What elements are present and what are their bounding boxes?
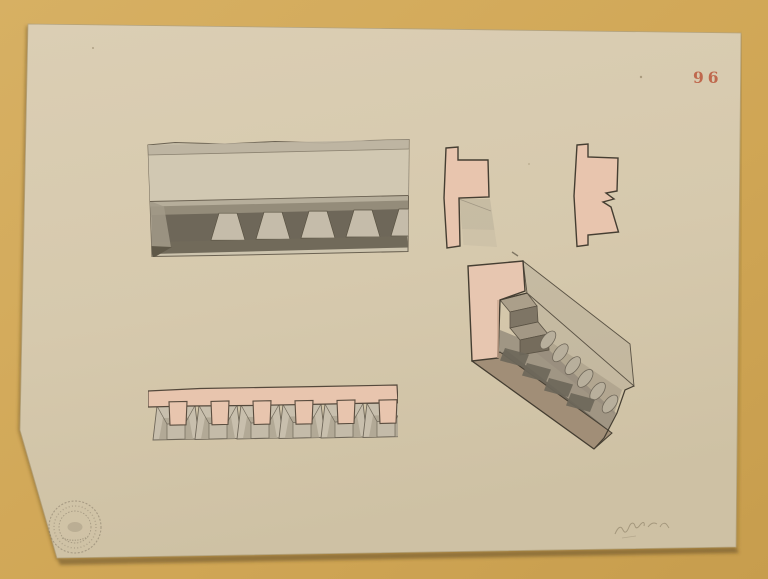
soffit-square-inner xyxy=(167,424,185,440)
soffit-pink-stem xyxy=(337,400,355,424)
soffit-pink-stem xyxy=(379,400,397,424)
soffit-pink-stem xyxy=(295,400,313,424)
elevation-frieze xyxy=(148,149,409,202)
paper-sheet xyxy=(20,24,741,558)
photographed-drawing-scene: 96 xyxy=(0,0,768,579)
soffit-pink-stem xyxy=(253,401,271,425)
soffit-pink-stem xyxy=(211,401,229,425)
soffit-square-inner xyxy=(209,423,227,439)
profile-a-dentil-shadow-faint xyxy=(462,229,497,247)
view-dentil-soffit xyxy=(148,385,409,440)
page-number: 96 xyxy=(693,68,723,87)
drawing-plate-svg: 96 xyxy=(0,0,768,579)
profile-a-dentil-shadow xyxy=(459,199,495,230)
soffit-pink-stem xyxy=(169,401,187,425)
